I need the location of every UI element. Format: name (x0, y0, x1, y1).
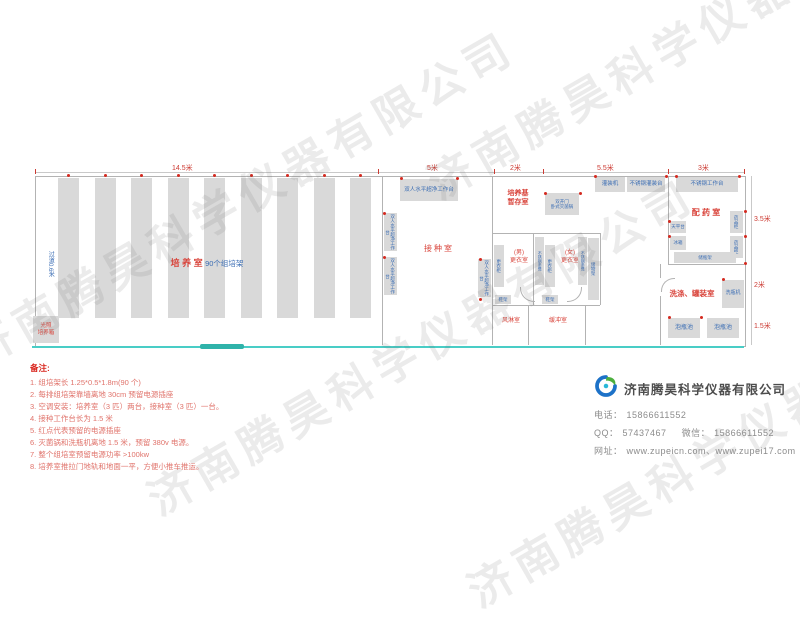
dimension-line-top (35, 172, 744, 173)
power-outlet-dot (744, 210, 747, 213)
medicine-cabinet-1: 药品柜 (730, 211, 743, 233)
company-web-line: 网址：www.zupeicn.com、www.zupei17.com (594, 444, 800, 457)
work-table: 不锈钢工作台 (676, 177, 738, 192)
dim-2m: 2米 (510, 163, 521, 173)
floor-plan: 14.5米 5米 2米 5.5米 3米 3.5米 2米 1.5米 过道0.6米 … (32, 166, 772, 356)
power-outlet-dot (479, 258, 482, 261)
note-item: 5. 红点代表预留的电源插座 (30, 425, 223, 437)
buffer-room-label: 缓冲室 (540, 318, 576, 326)
culture-room-label: 培 养 室 90个组培架 (127, 258, 287, 269)
power-outlet-dot (665, 175, 668, 178)
note-item: 7. 整个组培室预留电源功率 >100kw (30, 449, 223, 461)
fridge: 冰箱 (670, 236, 686, 250)
phone-label: 电话： (594, 410, 623, 420)
power-outlet-dot (579, 192, 582, 195)
power-outlet-dot (104, 174, 107, 177)
wechat-label: 微信： (682, 428, 711, 438)
power-outlet-dot (323, 174, 326, 177)
culture-rack (168, 178, 189, 318)
dim-3-5m: 3.5米 (754, 214, 771, 224)
power-outlet-dot (213, 174, 216, 177)
power-outlet-dot (700, 316, 703, 319)
bottle-storage-rack: 储瓶架 (674, 252, 736, 263)
power-outlet-dot (744, 262, 747, 265)
medium-storage-label: 培养基 暂存室 (496, 190, 540, 208)
men-line2: 更衣室 (504, 258, 534, 266)
shoe-rack-2: 鞋架 (542, 295, 558, 304)
power-outlet-dot (722, 278, 725, 281)
wechat-value: 15866611552 (714, 428, 774, 438)
medium-storage-line2: 暂存室 (496, 199, 540, 208)
dim-5-5m: 5.5米 (597, 163, 614, 173)
web-label: 网址： (594, 446, 623, 456)
shoe-rack-1: 鞋架 (495, 295, 511, 304)
air-shower-label: 风淋室 (495, 318, 527, 326)
power-outlet-dot (359, 174, 362, 177)
medium-storage-line1: 培养基 (496, 190, 540, 199)
culture-rack (277, 178, 298, 318)
culture-rack (241, 178, 262, 318)
note-item: 8. 培养室推拉门地轨和地面一平，方便小推车推运。 (30, 461, 223, 473)
bottle-washer: 洗瓶机 (722, 280, 744, 308)
note-item: 3. 空调安装：培养室（3 匹）两台，接种室（3 匹）一台。 (30, 401, 223, 413)
wardrobe-men: 更衣柜 (494, 245, 504, 287)
power-outlet-dot (744, 235, 747, 238)
inoculation-room-label: 接种室 (414, 244, 464, 254)
dim-2m-v: 2米 (754, 280, 765, 290)
sliding-door (200, 344, 244, 349)
soak-pool-1: 泡瓶池 (668, 318, 700, 338)
culture-rack (350, 178, 371, 318)
phone-value: 15866611552 (627, 410, 687, 420)
company-logo (594, 374, 618, 403)
website-links[interactable]: www.zupeicn.com、www.zupei17.com (627, 446, 796, 456)
clean-bench-right: 双人水平超净工作台 (478, 259, 491, 297)
company-phone-line: 电话：15866611552 (594, 408, 800, 421)
company-block: 济南腾昊科学仪器有限公司 电话：15866611552 QQ：57437467 … (594, 374, 800, 457)
qq-value: 57437467 (623, 428, 667, 438)
note-item: 2. 每排组培架靠墙离地 30cm 预留电源插座 (30, 389, 223, 401)
power-outlet-dot (383, 212, 386, 215)
sterilizer: 双开门 卧式灭菌锅 (545, 193, 579, 215)
soak-pool-2: 泡瓶池 (707, 318, 739, 338)
power-outlet-dot (456, 177, 459, 180)
culture-rack (204, 178, 225, 318)
light-incubator: 光照 培养箱 (33, 316, 59, 343)
power-outlet-dot (286, 174, 289, 177)
dim-1-5m-v: 1.5米 (754, 321, 771, 331)
culture-rack (131, 178, 152, 318)
men-line1: (男) (504, 250, 534, 258)
culture-room-name: 培 养 室 (171, 258, 203, 268)
balance-table: 天平台 (670, 221, 686, 233)
ss-bench-2: 不锈钢条凳 (578, 237, 587, 285)
filling-table: 不锈钢灌装台 (627, 177, 665, 192)
power-outlet-dot (479, 298, 482, 301)
filling-machine: 灌装机 (595, 177, 625, 192)
washing-room-label: 洗涤、罐装室 (662, 289, 722, 298)
company-qq-line: QQ：57437467 微信：15866611552 (594, 426, 800, 439)
power-outlet-dot (668, 235, 671, 238)
incubator-line2: 培养箱 (38, 330, 55, 336)
dim-5m: 5米 (427, 163, 438, 173)
bottom-wall-line (32, 346, 744, 348)
clean-bench-top: 双人水平超净工作台 (400, 179, 458, 201)
dimension-line-right (751, 176, 752, 345)
power-outlet-dot (668, 316, 671, 319)
power-outlet-dot (400, 177, 403, 180)
clean-bench-left-1: 双人水平超净工作台 (384, 213, 397, 251)
company-name: 济南腾昊科学仪器有限公司 (624, 379, 786, 398)
men-changing-room-label: (男) 更衣室 (504, 250, 534, 265)
power-outlet-dot (675, 175, 678, 178)
culture-rack (314, 178, 335, 318)
dim-14-5m: 14.5米 (172, 163, 193, 173)
power-outlet-dot (250, 174, 253, 177)
wardrobe-women: 更衣柜 (545, 245, 555, 287)
ss-bench-1: 不锈钢条凳 (535, 237, 544, 285)
qq-label: QQ： (594, 428, 619, 438)
dim-3m: 3米 (698, 163, 709, 173)
sterilizer-line2: 卧式灭菌锅 (551, 204, 574, 209)
pharmacy-room-label: 配 药 室 (680, 208, 732, 218)
notes-block: 备注: 1. 组培架长 1.25*0.5*1.8m(90 个)2. 每排组培架靠… (30, 362, 223, 473)
power-outlet-dot (738, 175, 741, 178)
power-outlet-dot (177, 174, 180, 177)
racks-count-label: 90个组培架 (205, 259, 243, 268)
note-item: 4. 接种工作台长为 1.5 米 (30, 413, 223, 425)
note-item: 6. 灭菌锅和洗瓶机离地 1.5 米，预留 380v 电源。 (30, 437, 223, 449)
clean-bench-left-2: 双人水平超净工作台 (384, 257, 397, 295)
note-item: 1. 组培架长 1.25*0.5*1.8m(90 个) (30, 377, 223, 389)
storage-rack: 储物架 (588, 238, 599, 300)
power-outlet-dot (544, 192, 547, 195)
power-outlet-dot (383, 256, 386, 259)
culture-rack (95, 178, 116, 318)
power-outlet-dot (594, 175, 597, 178)
aisle-label: 过道0.6米 (46, 224, 53, 304)
culture-rack (58, 178, 79, 318)
power-outlet-dot (67, 174, 70, 177)
power-outlet-dot (140, 174, 143, 177)
notes-list: 1. 组培架长 1.25*0.5*1.8m(90 个)2. 每排组培架靠墙离地 … (30, 377, 223, 473)
notes-title: 备注: (30, 362, 223, 374)
power-outlet-dot (668, 220, 671, 223)
